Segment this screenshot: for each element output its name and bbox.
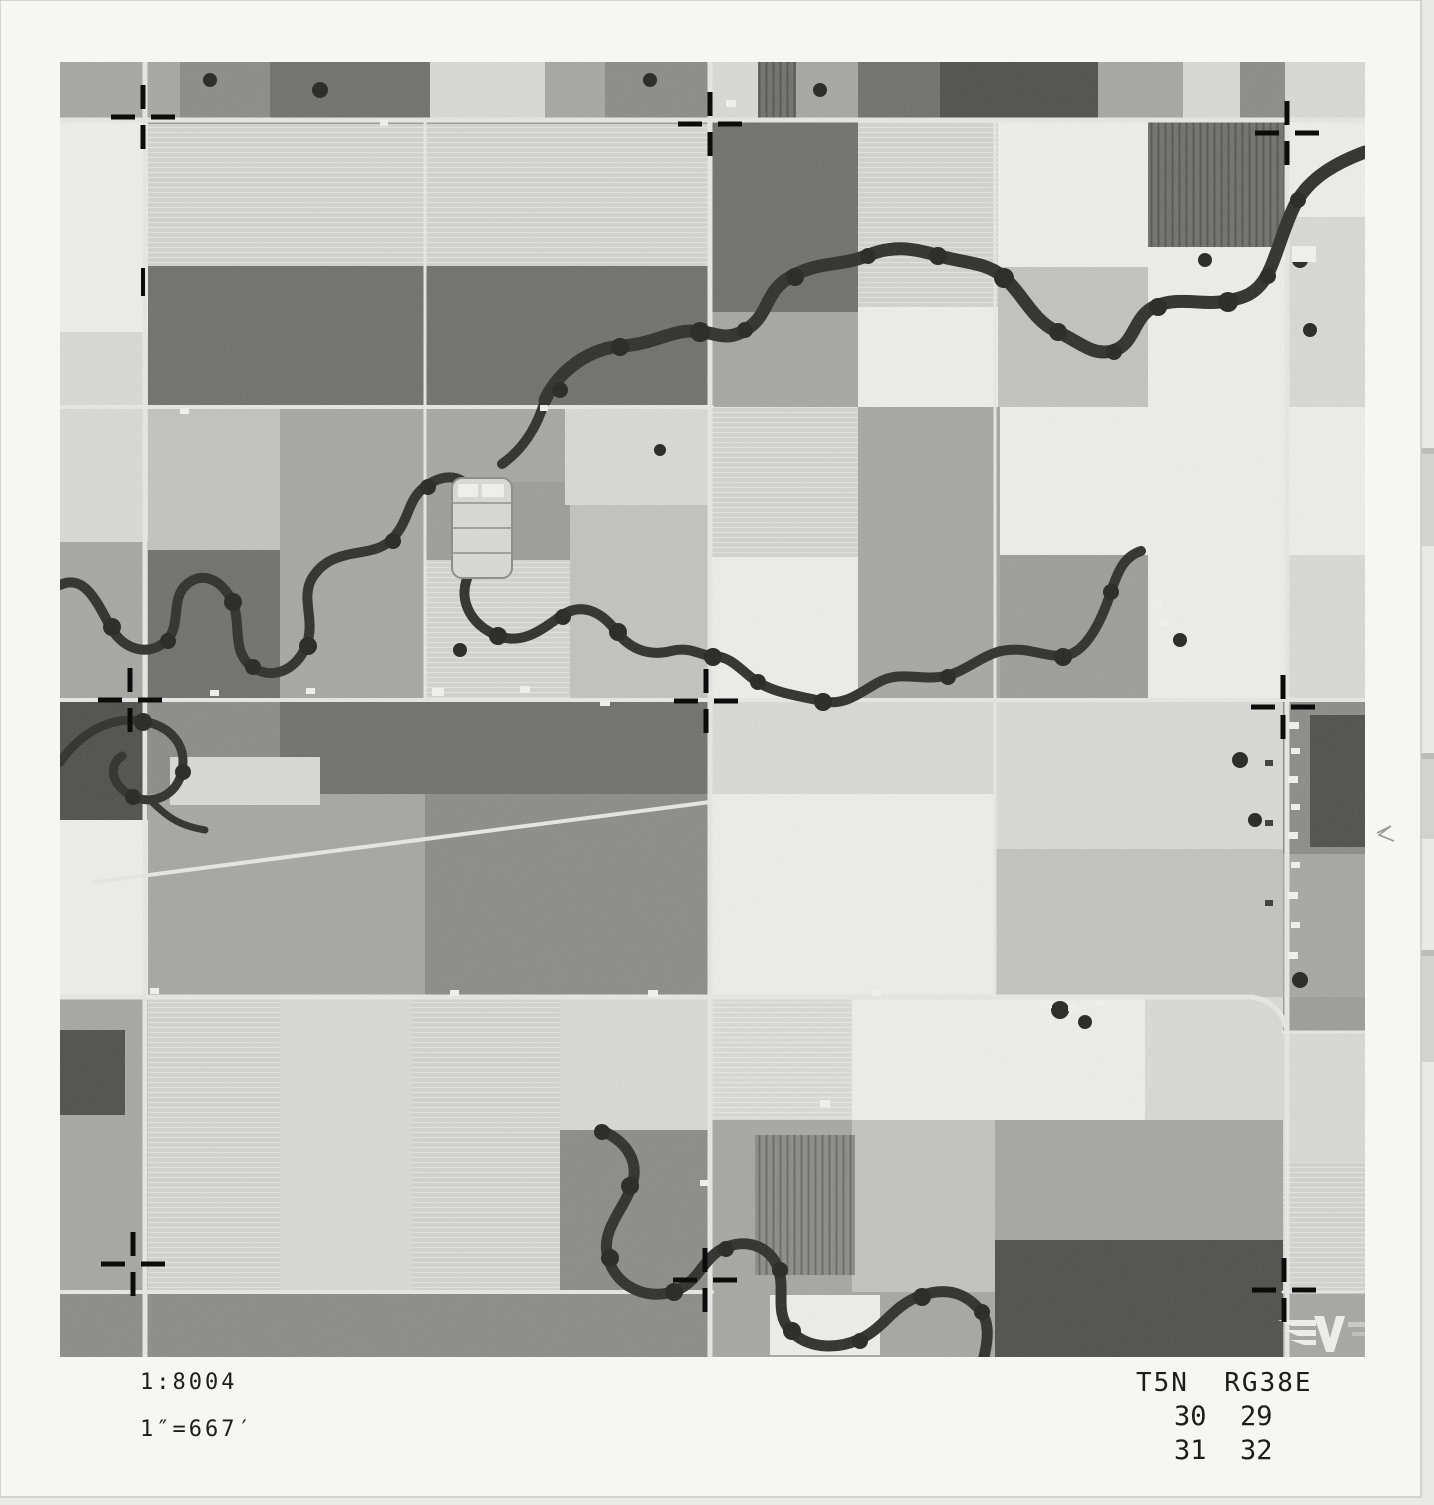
- scale-equivalence-label: 1″=667′: [140, 1419, 254, 1441]
- section-number-nw: 30: [1174, 1403, 1222, 1430]
- scale-ratio-label: 1:8004: [140, 1372, 237, 1394]
- section-number-ne: 29: [1240, 1403, 1288, 1430]
- township-range-label: T5N RG38E: [1136, 1370, 1313, 1396]
- section-number-sw: 31: [1174, 1437, 1222, 1464]
- section-number-se: 32: [1240, 1437, 1288, 1464]
- aerial-photo-image: [0, 0, 1434, 1505]
- scanned-aerial-photo-sheet: 1:8004 1″=667′ T5N RG38E 30 29 31 32: [0, 0, 1434, 1505]
- section-numbers: 30 29 31 32: [1174, 1403, 1288, 1464]
